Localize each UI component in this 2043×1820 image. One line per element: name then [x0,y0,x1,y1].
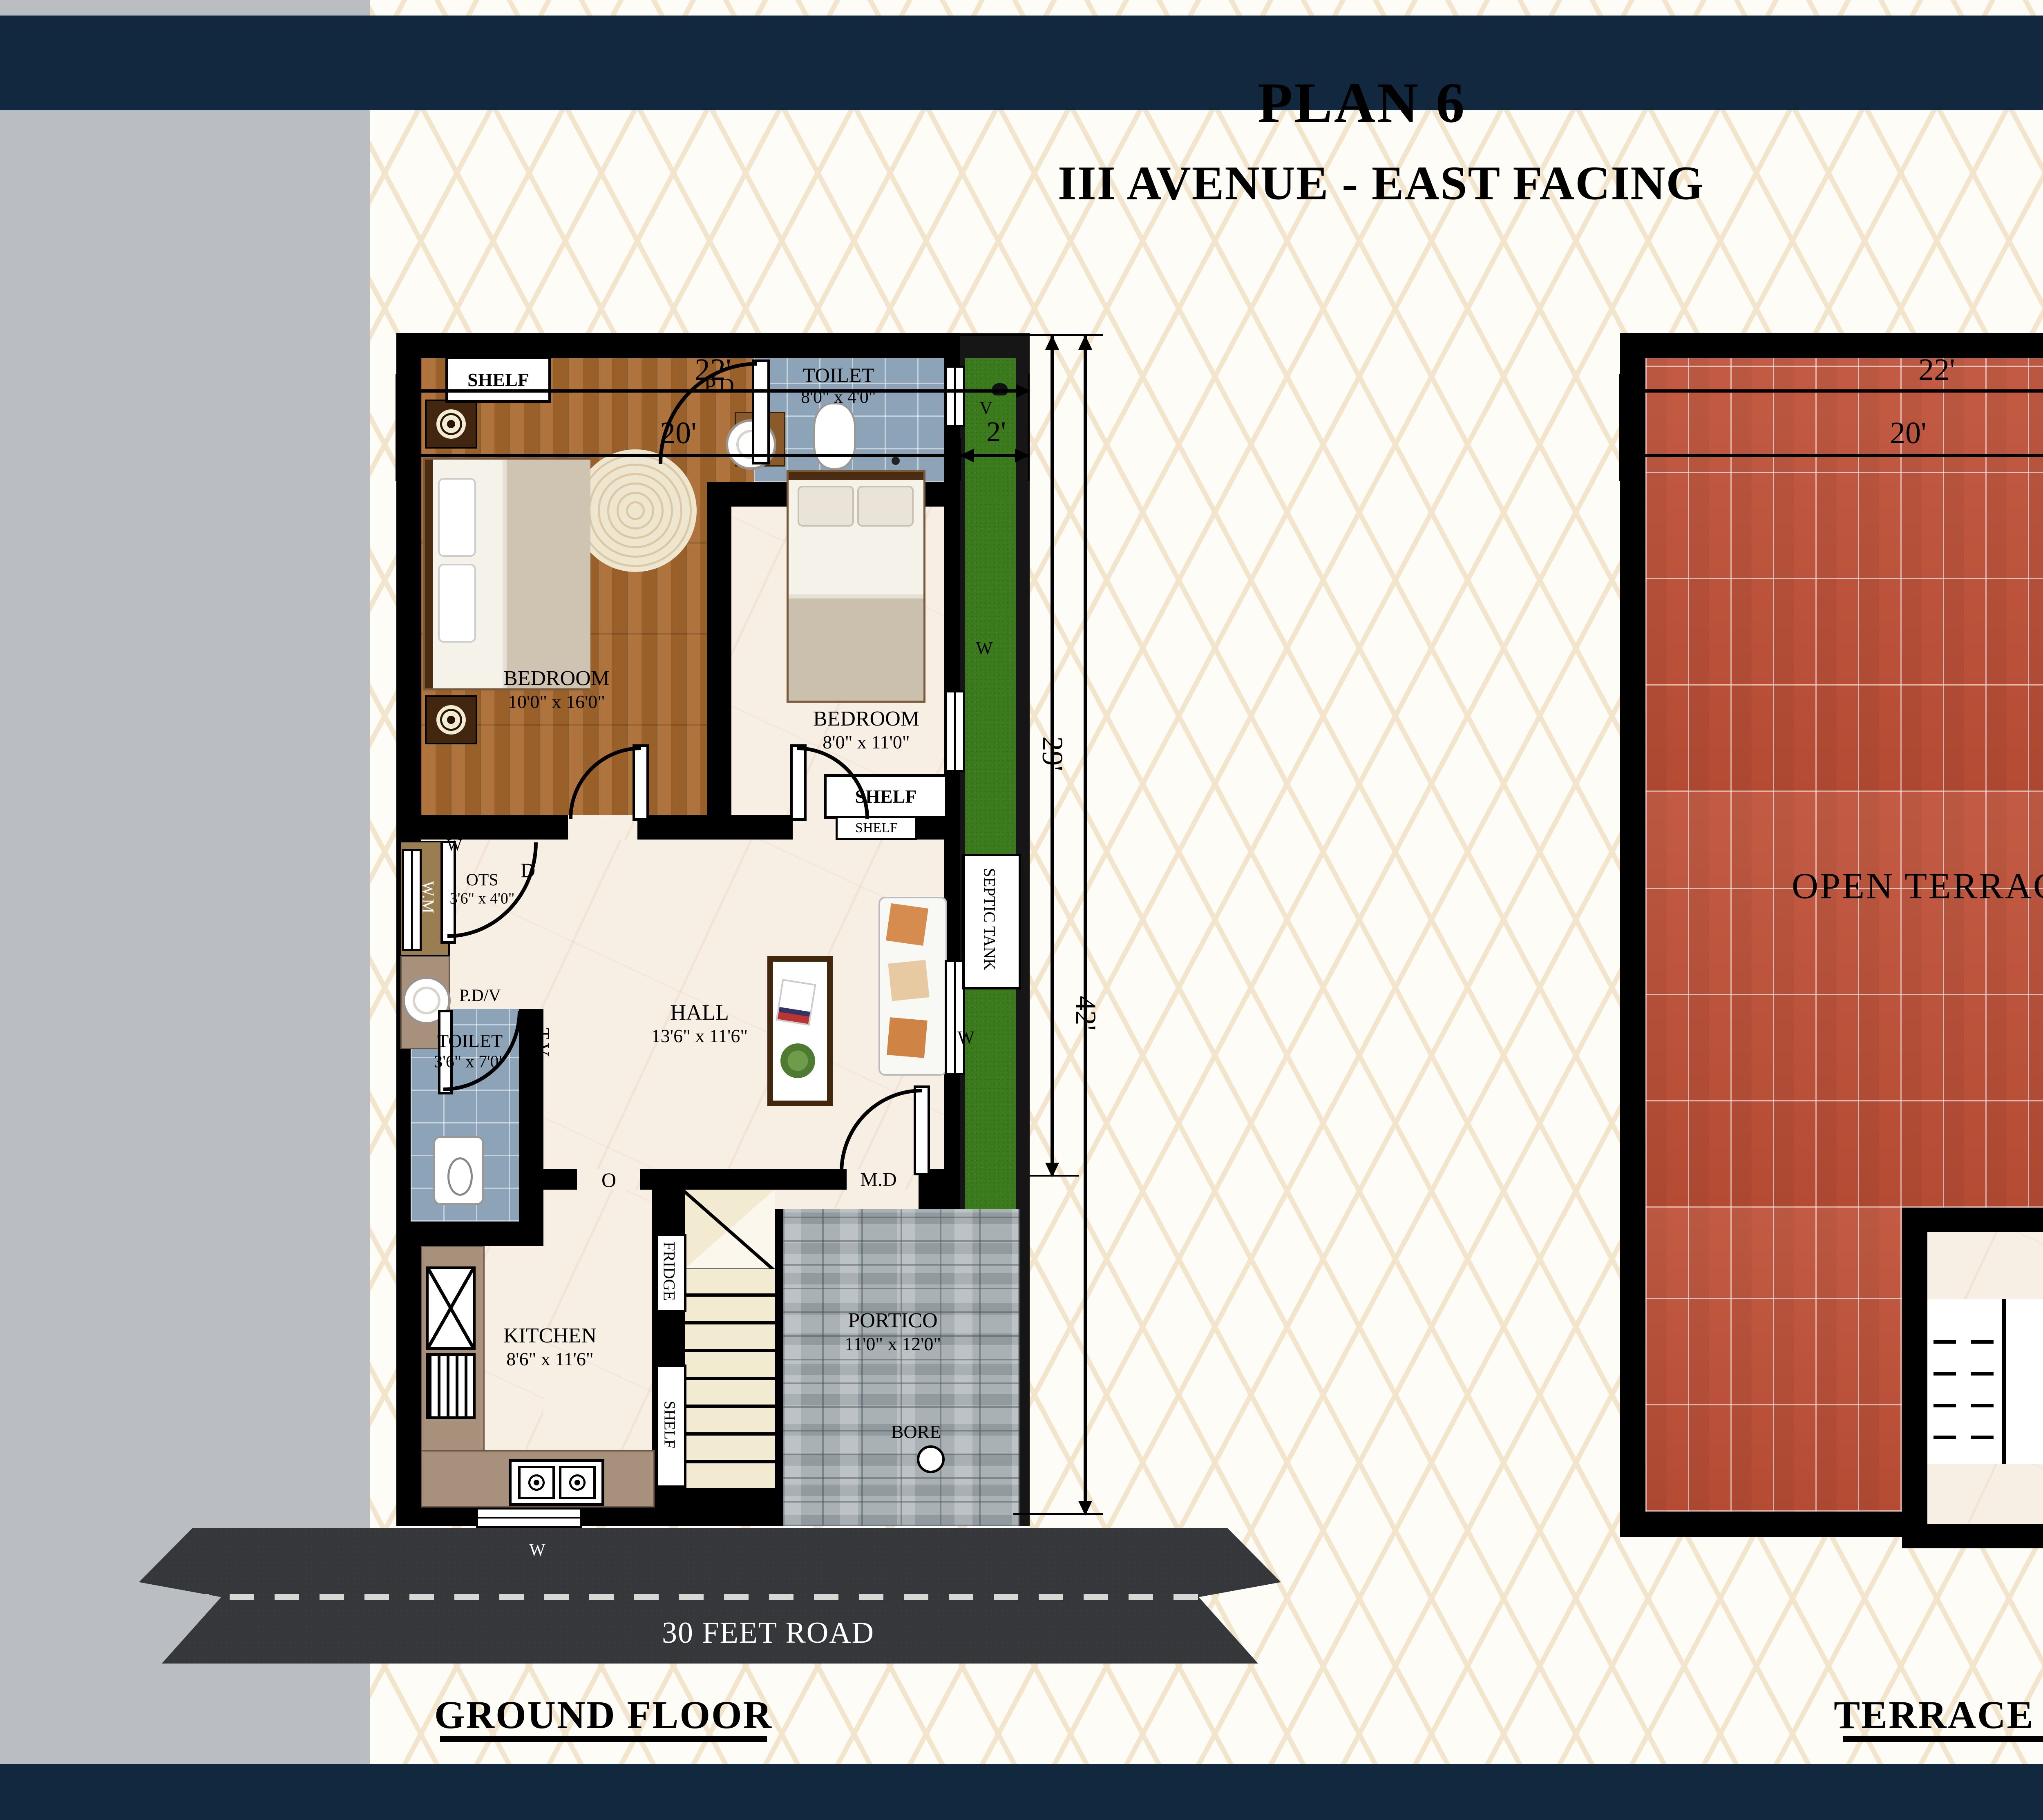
road-label: 30 FEET ROAD [662,1617,874,1650]
tf-dim-20 [1620,454,2043,457]
kitchen-sink-icon [426,1266,476,1350]
septic-tank-label: SEPTIC TANK [981,868,998,971]
floor-drain-icon [892,457,900,465]
bed1 [423,458,590,690]
stair-dash [1933,1404,1996,1407]
tf-terrace-leftleg [1645,1208,1902,1512]
coffee-table [767,956,833,1106]
gf-dim-42-label: 42' [1069,996,1101,1031]
tf-dim-22 [1620,389,2043,393]
gf-dim-42 [1084,336,1087,1515]
hall-shelf-label: SHELF [855,820,898,836]
lamp-icon [436,705,466,735]
bedroom2-size: 8'0" x 11'0" [823,732,910,753]
sofa-pillow [886,903,928,946]
bed2-headboard [789,472,923,480]
kitchen-drainboard-icon [426,1353,476,1419]
tf-dim-20-label: 20' [1890,416,1927,450]
gf-dim-22 [396,389,1030,393]
bedroom1-size: 10'0" x 16'0" [508,692,605,712]
door2-label: D [764,814,778,836]
nightstand [425,695,477,744]
garden-window2-label: W [957,1028,975,1047]
ots-size: 3'6" x 4'0" [450,890,515,907]
sofa [878,897,947,1076]
gf-dim-22-label: 22' [695,353,731,386]
vent-label: V [979,398,992,418]
road-window-label: W [529,1541,545,1559]
bedroom1-shelf: SHELF [445,356,551,403]
ground-floor-title: GROUND FLOOR [434,1694,773,1736]
bottom-navy-bar [0,1764,2043,1820]
bedroom1-label: BEDROOM [503,667,610,690]
sofa-pillow [887,1017,928,1058]
gf-garden [965,358,1016,1209]
gf-portico-porch [775,1190,919,1209]
ground-floor-underline [440,1736,767,1742]
squat-toilet-icon [433,1136,484,1205]
gf-dim-20 [396,454,960,457]
table-plant-icon [780,1043,815,1078]
tf-stair-corridor-bottom [1927,1464,2043,1524]
gf-portico-right-edge [1019,1209,1030,1526]
nightstand [425,400,477,449]
ots-window [402,849,422,951]
toilet1-label: TOILET [803,364,874,386]
bed2 [787,470,925,703]
hall-shelf-niche: SHELF [836,816,917,840]
fridge-label: FRIDGE [660,1242,678,1301]
door3-label: D [521,859,535,881]
stair-dash [1933,1436,1996,1439]
open-terrace-label: OPEN TERRACE [1792,866,2043,906]
stair-dash [1933,1340,1996,1344]
tf-stair-corridor-top [1927,1232,2043,1299]
gf-dim-2-label: 2' [986,417,1006,448]
stove-burner-icon [518,1466,555,1499]
tf-terrace-upper [1645,358,2043,792]
bore-icon [917,1445,945,1473]
bed1-pillow [438,478,476,557]
bed1-headboard [425,460,433,688]
tv-label: T.V [532,1028,553,1056]
stove-burner-icon [559,1466,596,1499]
tf-terrace-mid [1645,792,2043,1208]
road-centerline [185,1594,1235,1600]
terrace-floor-title: TERRACE FLOOR [1834,1694,2043,1736]
kitchen-window [476,1507,582,1528]
top-navy-bar [0,16,2043,110]
portico-label: PORTICO [848,1309,937,1332]
bedroom1-shelf-label: SHELF [467,369,529,391]
round-rug [574,449,697,572]
bed2-blanket [789,594,923,701]
page-title: PLAN 6 [1258,72,1466,134]
hall-size: 13'6" x 11'6" [651,1026,748,1046]
sofa-pillow [888,960,929,1001]
pdv-label: P.D/V [459,987,501,1005]
ots-label: OTS [466,871,498,889]
gf-dim-2 [960,454,1029,457]
kitchen-size: 8'6" x 11'6" [506,1349,593,1369]
kitchen-shelf-label: SHELF [661,1401,677,1448]
wm-label: W.M [419,881,437,913]
portico-size: 11'0" x 12'0" [845,1334,941,1354]
tf-dim-22-label: 22' [1918,353,1955,386]
gf-dim-20-label: 20' [660,416,697,450]
gf-kitchen-floor-a [543,1190,652,1450]
wm-window-label: W [447,836,462,853]
bedroom2-window [945,690,965,772]
kitchen-label: KITCHEN [503,1324,597,1347]
bed2-pillow [857,486,914,527]
lamp-icon [436,409,466,439]
plan-sheet: PLAN 6 III AVENUE - EAST FACING N [0,0,2043,1820]
squat-pan-bowl [447,1157,473,1196]
opening-label: O [601,1169,616,1191]
gf-stair-treads [685,1268,775,1491]
terrace-floor-underline [1843,1736,2043,1742]
gf-portico-floor [783,1209,1019,1526]
toilet1-window [945,366,965,427]
toilet2-size: 3'6" x 7'0" [434,1053,505,1071]
gf-door-gap-bedroom1 [568,815,637,840]
main-door-label: M.D [860,1169,896,1190]
gf-dim-29-label: 29' [1036,737,1068,771]
bed1-pillow [438,564,476,643]
road: 30 FEET ROAD W [139,1528,1281,1664]
toilet2-label: TOILET [437,1031,503,1051]
garden-window-label: W [976,639,993,658]
bore-label: BORE [891,1422,941,1442]
stair-dash [1933,1372,1996,1376]
bed1-blanket [503,460,590,688]
door1-label: D [645,814,660,836]
table-book [776,979,816,1026]
toilet1-commode-icon [813,402,856,470]
bedroom2-label: BEDROOM [813,708,919,730]
bed2-pillow [798,486,854,527]
hall-label: HALL [670,1000,729,1024]
tf-stairwell-left [1927,1299,2002,1464]
page-subtitle: III AVENUE - EAST FACING [1058,157,1704,209]
tf-stairwell-landing [2006,1299,2043,1464]
